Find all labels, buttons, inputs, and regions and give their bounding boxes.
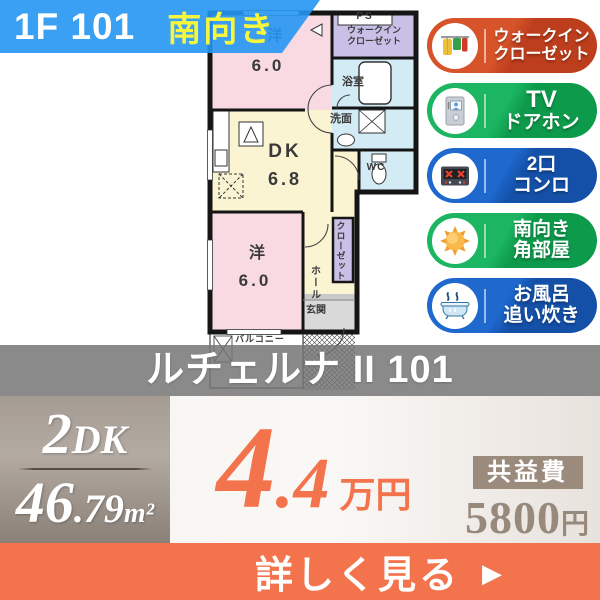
header-ribbon: 1F 101 南向き: [0, 0, 320, 53]
feature-walk-in-closet: ウォークイン クローゼット: [427, 18, 597, 73]
feature-label: 南向き: [486, 220, 597, 241]
right-arrow-icon: ▶: [482, 555, 502, 589]
fee-value: 5800: [465, 492, 561, 543]
room-size-western-bottom: 6.0: [220, 272, 290, 290]
closet-label: クローゼット: [335, 220, 344, 282]
wc-label: WC: [356, 163, 396, 174]
fee-unit: 円: [561, 509, 590, 540]
wash-basin: [338, 134, 355, 146]
pipe-space-label: PS: [345, 12, 385, 23]
feature-label: 追い炊き: [486, 306, 597, 327]
layout-rooms-count: 2: [43, 401, 72, 466]
feature-label: お風呂: [486, 285, 597, 306]
bathtub-icon: [432, 283, 478, 329]
unit-number: 1F 101: [14, 6, 135, 48]
rent-integer: 4: [216, 418, 275, 518]
area-fraction: .79: [74, 486, 124, 531]
bathroom-label: 浴室: [333, 77, 373, 89]
room-label-western-bottom: 洋: [222, 246, 292, 263]
feature-label: ドアホン: [486, 113, 597, 134]
washing-machine: [359, 110, 385, 133]
feature-label: コンロ: [486, 176, 597, 197]
room-size-dk: 6.8: [250, 170, 320, 189]
property-name: ルチェルナ II 101: [146, 349, 454, 391]
floor-area: 46.79m²: [0, 475, 170, 530]
layout-area-box: 2DK 46.79m²: [0, 396, 170, 543]
property-name-band: ルチェルナ II 101: [0, 345, 600, 396]
details-button[interactable]: 詳しく見る ▶: [0, 543, 600, 600]
common-fee-label: 共益費: [473, 456, 583, 489]
feature-bath-reheating: お風呂 追い炊き: [427, 278, 597, 333]
property-listing-card: 洋 6.0 PS ウォークイン クローゼット 浴室 洗面 WC DK 6.8 洋…: [0, 0, 600, 600]
rent-unit: 万円: [339, 466, 411, 518]
feature-south-corner: 南向き 角部屋: [427, 213, 597, 268]
feature-label: ウォークイン: [486, 28, 597, 46]
walk-in-closet-icon: [432, 23, 478, 69]
area-unit: m²: [124, 498, 154, 529]
stove-icon: [432, 153, 478, 199]
feature-tv-doorphone: TV ドアホン: [427, 83, 597, 138]
washroom-label: 洗面: [321, 114, 361, 126]
common-fee-amount: 5800円: [455, 495, 600, 541]
room-size-western-top: 6.0: [233, 57, 303, 75]
walk-in-closet-label-line2: クローゼット: [334, 37, 414, 46]
price-section: 2DK 46.79m² 4.4万円 共益費 5800円: [0, 396, 600, 543]
common-fee: 共益費 5800円: [455, 396, 600, 543]
layout-type: 2DK: [0, 406, 170, 461]
walk-in-closet-label-line1: ウォークイン: [334, 26, 414, 35]
feature-badges: ウォークイン クローゼット TV ドアホン: [427, 18, 597, 343]
entrance-label: 玄関: [296, 306, 336, 317]
feature-two-burner-stove: 2口 コンロ: [427, 148, 597, 203]
feature-label: 2口: [486, 155, 597, 176]
rent-fraction: .4: [275, 442, 329, 525]
area-integer: 46: [16, 470, 74, 535]
feature-label: クローゼット: [486, 46, 597, 64]
tv-doorphone-icon: [432, 88, 478, 134]
feature-label: TV: [486, 87, 597, 113]
balcony-label: バルコニー: [225, 335, 295, 344]
rent-price: 4.4万円: [170, 396, 458, 543]
feature-label: 角部屋: [486, 241, 597, 262]
facing-direction: 南向き: [167, 2, 275, 51]
hall-label: ホール: [308, 256, 319, 310]
details-button-label: 詳しく見る: [255, 544, 460, 599]
sun-icon: [432, 218, 478, 264]
layout-rooms-type: DK: [72, 417, 128, 462]
room-label-dk: DK: [250, 142, 320, 162]
